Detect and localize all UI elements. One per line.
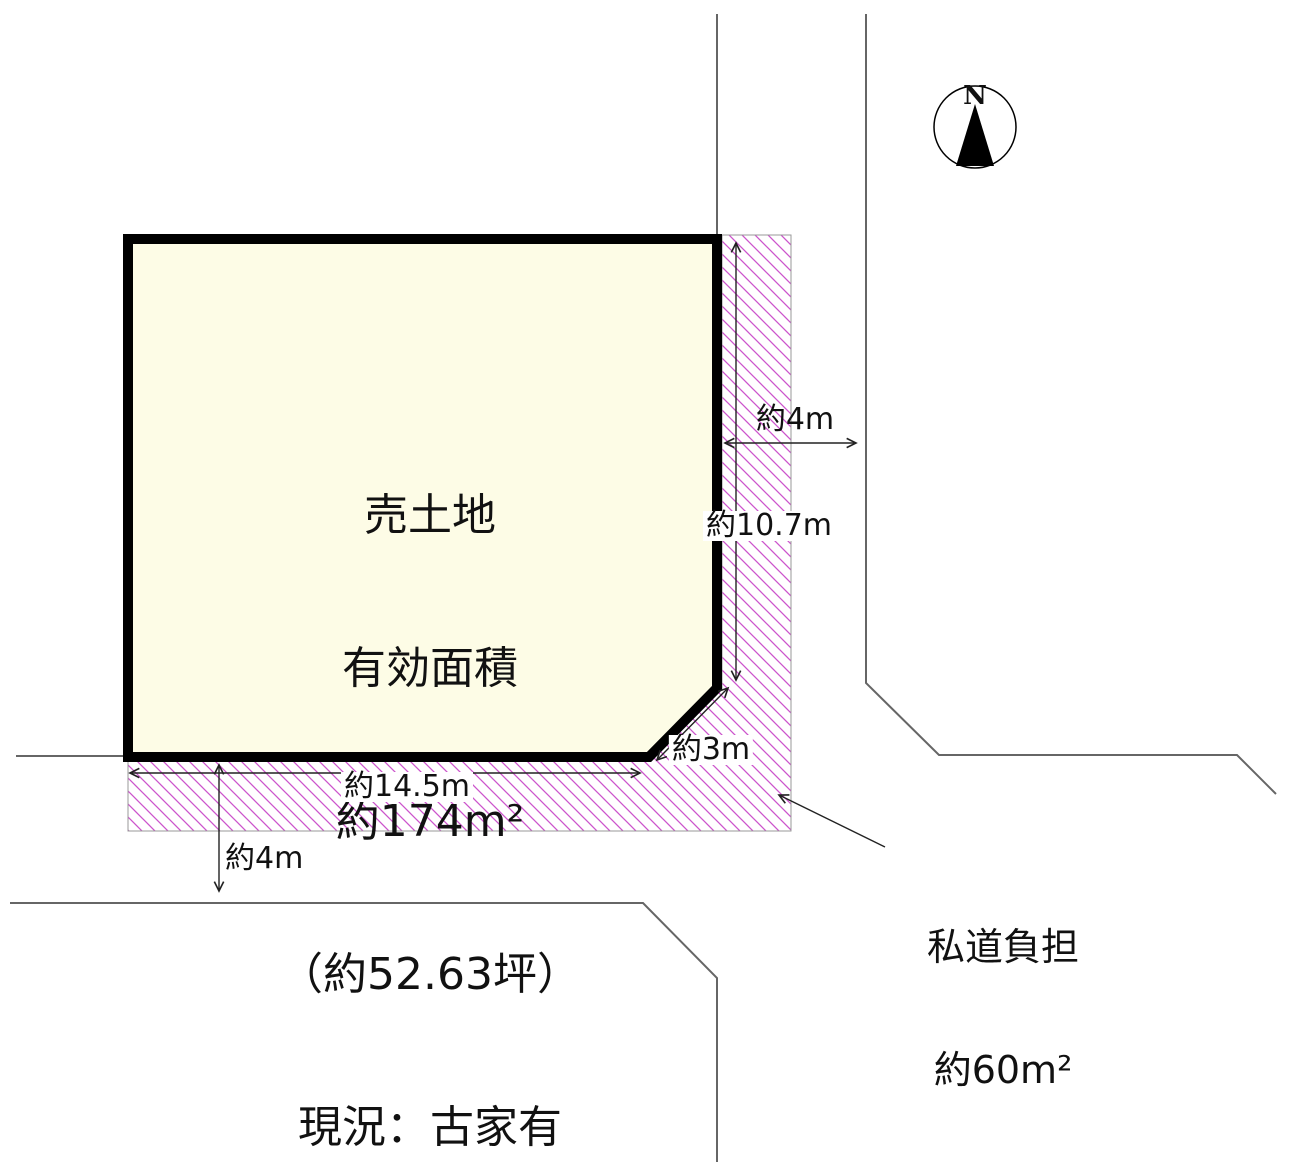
dim-label-corner-cut: 約3m [669, 735, 753, 765]
private-road-leader-line [779, 795, 885, 847]
land-plot-diagram: N 売土地 有効面積 約174m² （約52.63坪） 現況：古家有 約4m 約… [0, 0, 1291, 1176]
site-plan-canvas [0, 0, 1291, 1176]
plot-area-tsubo: （約52.63坪） [279, 949, 581, 1000]
plot-effective-area-caption: 有効面積 [279, 643, 581, 694]
compass-north-needle-icon [956, 104, 994, 166]
private-road-note-title: 私道負担 [927, 927, 1079, 968]
dim-label-road-south-width: 約4m [225, 844, 303, 874]
dim-label-south-side: 約14.5m [341, 772, 473, 802]
compass-north-label: N [963, 83, 987, 109]
private-road-note-area: 約60m² [927, 1050, 1079, 1091]
road-boundary-east [866, 14, 1276, 794]
dim-label-road-east-width: 約4m [753, 405, 837, 435]
dim-label-east-side: 約10.7m [703, 511, 835, 541]
private-road-note: 私道負担 約60m² [927, 845, 1079, 1173]
plot-title: 売土地 [279, 490, 581, 541]
plot-current-state: 現況：古家有 [279, 1102, 581, 1153]
